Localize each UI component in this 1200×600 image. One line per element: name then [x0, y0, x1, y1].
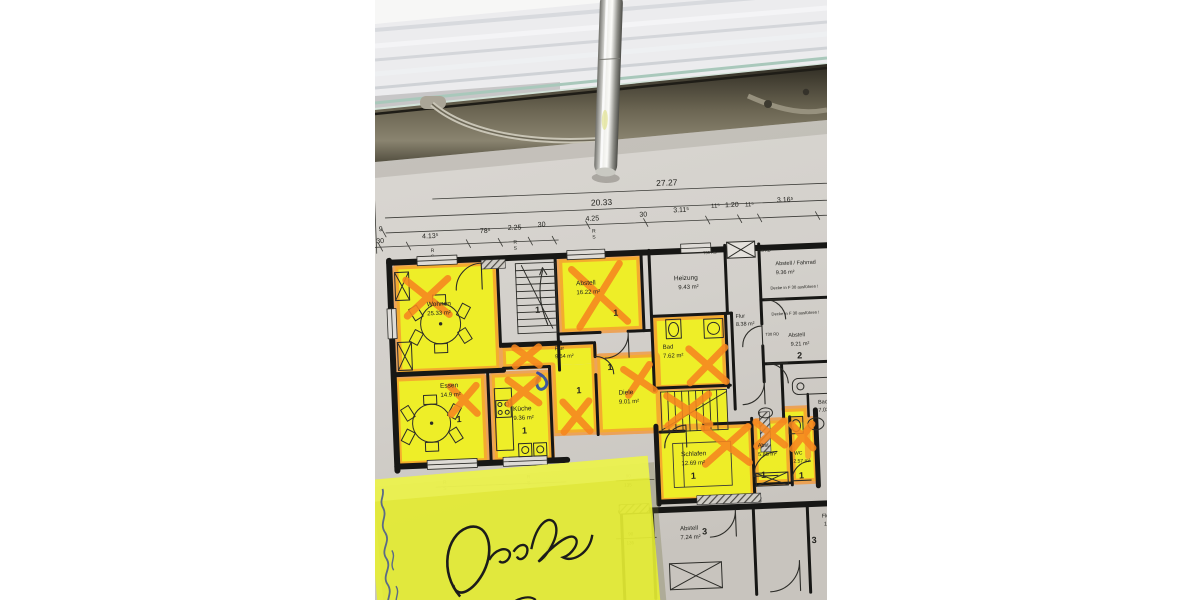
room-name: Flur [822, 513, 827, 519]
dim-tick: 30 [639, 211, 647, 218]
room-name: Abstell [576, 280, 596, 288]
dim-tick: 4.13⁵ [422, 233, 439, 241]
floorplan-photo-svg: 27.27 20.33 9 4.25 30 3.11⁵ 11⁵ 1.20 11⁵… [375, 0, 827, 600]
room-area: 7.62 m² [663, 353, 684, 360]
dim-subtotal: 20.33 [591, 197, 613, 208]
unit-number: 1 [607, 362, 612, 372]
room-name: Wohnen [427, 300, 452, 308]
room-area: 9.43 m² [678, 284, 699, 291]
unit-number: 2 [797, 350, 802, 360]
fire-label: T30 RD [765, 331, 779, 337]
room-area: 14.9 m² [440, 392, 461, 399]
room-name: Abstell [788, 332, 805, 339]
room-area: 25.33 m² [427, 310, 451, 317]
dim-tick: 78⁵ [480, 228, 491, 235]
screenshot-root: { "scene": { "description": "Photo of an… [0, 0, 1200, 600]
room-area: 18. [824, 521, 827, 527]
dim-tick: 3.16⁵ [777, 197, 794, 205]
room-name: Küche [513, 405, 532, 413]
room-name: Schlafen [681, 450, 707, 458]
room-name: Abstell [680, 526, 698, 533]
dim-tick: 4.25 [585, 215, 599, 223]
unit-number: 1 [613, 308, 618, 318]
room-area: 7.03 [818, 407, 827, 413]
dim-tick: 30 [538, 222, 546, 229]
dim-tick: 30 [376, 238, 384, 245]
room-area: 9.01 m² [619, 399, 640, 406]
dim-tick: 1.20 [725, 202, 739, 210]
binder-photo: 27.27 20.33 9 4.25 30 3.11⁵ 11⁵ 1.20 11⁵… [375, 0, 827, 600]
unit-number: 1 [576, 385, 581, 395]
unit-number: 1 [691, 471, 696, 481]
unit-number: 3 [702, 526, 707, 536]
unit-number: 1 [535, 305, 540, 315]
room-name: Abst [758, 443, 770, 449]
dim-tick: 9 [379, 226, 383, 233]
sticky-note [375, 455, 667, 600]
room-name: WC [794, 450, 803, 456]
room-name: Flur [735, 314, 745, 320]
room-name: Bad [818, 399, 827, 405]
room-area: 8.38 m² [736, 321, 755, 328]
unit-number: 1 [456, 414, 461, 424]
dim-tick: 11⁵ [745, 201, 755, 208]
room-area: 9.21 m² [791, 341, 810, 348]
room-name: Essen [440, 382, 459, 390]
unit-number: 1 [761, 470, 766, 480]
room-area: 9.36 m² [776, 270, 795, 277]
room-area: 2.57 m² [793, 458, 811, 465]
unit-number: 1 [799, 470, 804, 480]
fire-doors [727, 241, 756, 258]
room-area: 9.64 m² [555, 353, 574, 360]
room-area: 12.69 m² [681, 460, 705, 467]
room-name: Heizung [674, 274, 698, 282]
room-area: 9.36 m² [513, 415, 534, 422]
fire-label: T30 RS [703, 250, 717, 256]
dim-total: 27.27 [656, 177, 678, 188]
unit-number: 3 [811, 535, 816, 545]
room-name: Flur [555, 346, 565, 352]
room-name: Diele [618, 389, 633, 397]
dim-tick: 11⁵ [711, 202, 721, 209]
room-area: 16.22 m² [576, 289, 600, 296]
fire-label: T30 RD [757, 247, 771, 253]
dim-tick: 3.11⁵ [673, 207, 689, 215]
dim-tick: 2.25 [508, 224, 522, 232]
room-name: Bad [663, 344, 674, 350]
room-area: 7.24 m² [680, 535, 701, 542]
unit-number: 1 [522, 425, 527, 435]
room-area: 5.85 m² [758, 451, 777, 458]
